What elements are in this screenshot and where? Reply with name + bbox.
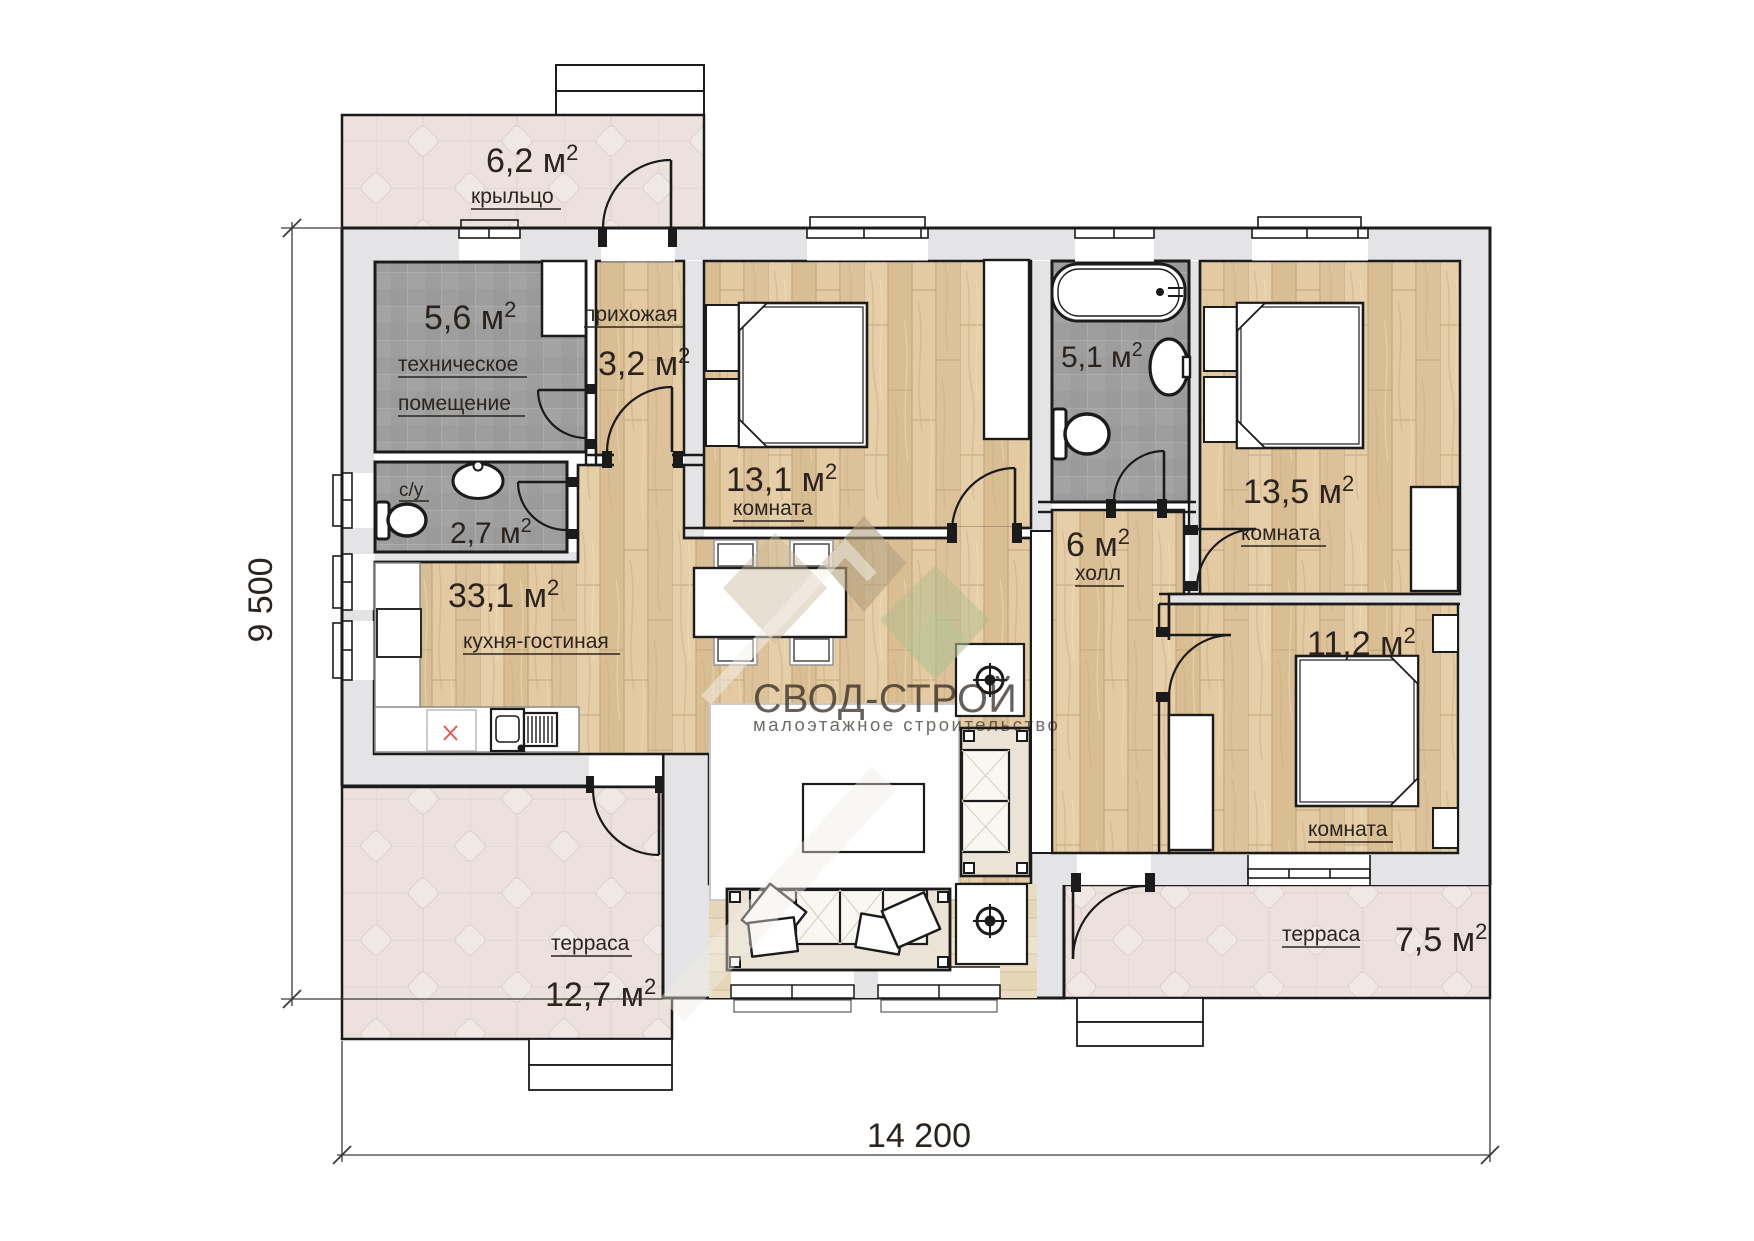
- svg-text:техническое: техническое: [398, 353, 518, 376]
- svg-text:комната: комната: [1308, 818, 1388, 841]
- svg-text:7,5 м2: 7,5 м2: [1395, 919, 1487, 959]
- svg-text:малоэтажное строительство: малоэтажное строительство: [753, 714, 1060, 735]
- svg-text:9 500: 9 500: [242, 557, 280, 642]
- svg-text:13,5 м2: 13,5 м2: [1243, 471, 1354, 511]
- svg-text:комната: комната: [733, 497, 813, 520]
- svg-text:прихожая: прихожая: [584, 303, 678, 326]
- svg-text:14 200: 14 200: [867, 1117, 971, 1155]
- svg-text:11,2 м2: 11,2 м2: [1307, 623, 1416, 663]
- svg-text:13,1 м2: 13,1 м2: [726, 459, 837, 499]
- svg-text:5,6 м2: 5,6 м2: [424, 297, 516, 337]
- svg-text:комната: комната: [1241, 522, 1321, 545]
- svg-text:холл: холл: [1075, 562, 1121, 585]
- svg-text:6,2 м2: 6,2 м2: [486, 140, 578, 180]
- svg-text:3,2 м2: 3,2 м2: [598, 343, 690, 383]
- svg-text:крыльцо: крыльцо: [471, 185, 554, 208]
- svg-text:терраса: терраса: [551, 932, 630, 955]
- svg-text:12,7 м2: 12,7 м2: [545, 974, 656, 1014]
- svg-text:2,7 м2: 2,7 м2: [450, 515, 532, 550]
- svg-text:терраса: терраса: [1282, 923, 1361, 946]
- svg-text:помещение: помещение: [398, 392, 511, 415]
- svg-text:с/у: с/у: [399, 480, 424, 501]
- svg-text:5,1 м2: 5,1 м2: [1061, 339, 1143, 374]
- svg-text:33,1 м2: 33,1 м2: [448, 575, 559, 615]
- svg-text:кухня-гостиная: кухня-гостиная: [463, 630, 609, 653]
